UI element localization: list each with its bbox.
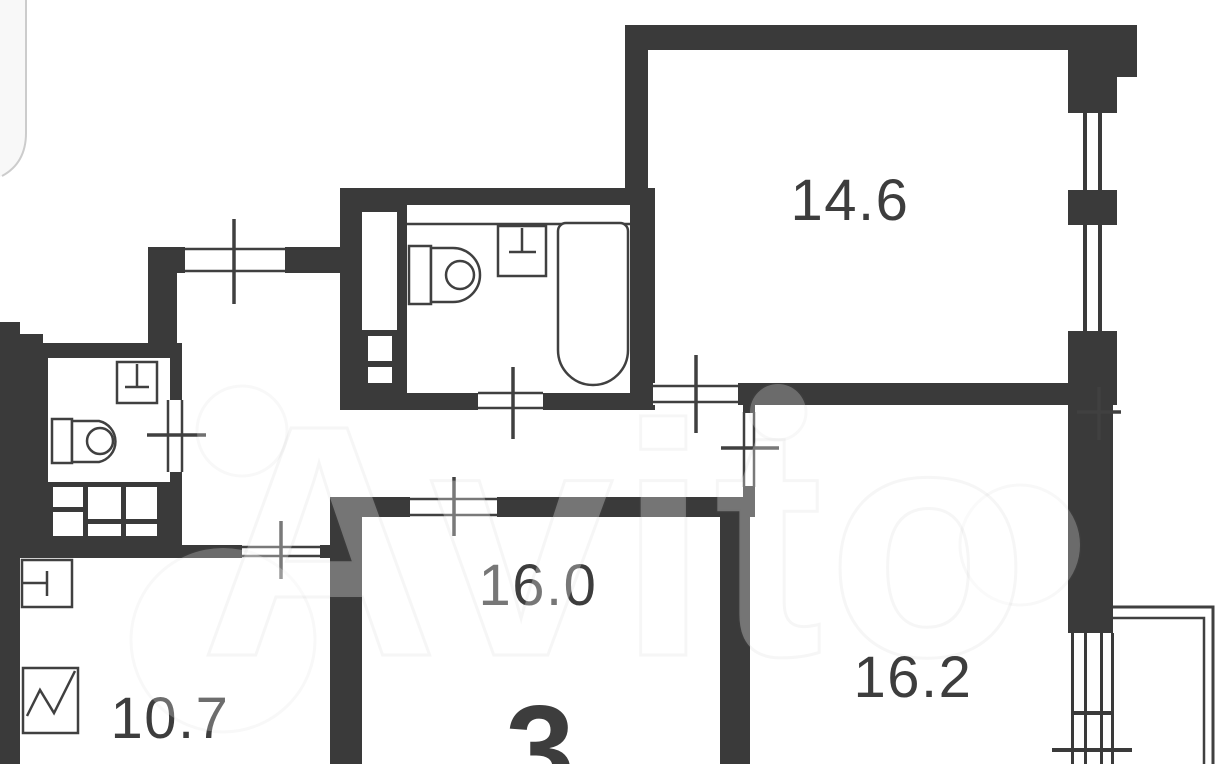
balcony: [1113, 607, 1213, 764]
floor-plan-screenshot: 14.6 16.0 16.2 10.7 3 Avito: [0, 0, 1220, 764]
wall: [625, 28, 648, 193]
shaft: [53, 487, 83, 507]
bathroom-niche: [362, 212, 397, 330]
floor-plan: 14.6 16.0 16.2 10.7 3 Avito: [0, 0, 1220, 764]
shaft: [88, 487, 121, 519]
window: [1072, 113, 1113, 190]
shaft: [126, 524, 157, 536]
window-mullion: [1098, 225, 1102, 331]
wall-step: [1117, 50, 1137, 77]
window-bottom-right: [1052, 633, 1132, 764]
window-sill: [1052, 748, 1132, 752]
window-mullion: [1083, 225, 1087, 331]
wc-sink-icon: [117, 362, 157, 403]
shaft: [53, 512, 83, 536]
watermark-text: Avito: [200, 356, 1033, 725]
shaft: [88, 524, 121, 536]
card-corner: [0, 0, 26, 177]
window: [1072, 225, 1113, 331]
shaft: [126, 487, 157, 519]
kitchen-stove-icon: [23, 668, 78, 733]
watermark: Avito: [131, 356, 1080, 732]
wc-toilet-icon: [52, 419, 115, 463]
wall-right: [1068, 50, 1117, 113]
bathroom-sink-icon: [498, 226, 546, 276]
wall-right: [1068, 190, 1117, 225]
room-area-label: 14.6: [791, 168, 910, 233]
wall: [148, 247, 177, 347]
window-mullion: [1083, 113, 1087, 190]
wall: [0, 322, 20, 764]
kitchen-sink-icon: [22, 560, 72, 607]
wall-top: [625, 25, 1137, 50]
bathroom-toilet-icon: [409, 246, 480, 304]
window-mullion: [1098, 113, 1102, 190]
